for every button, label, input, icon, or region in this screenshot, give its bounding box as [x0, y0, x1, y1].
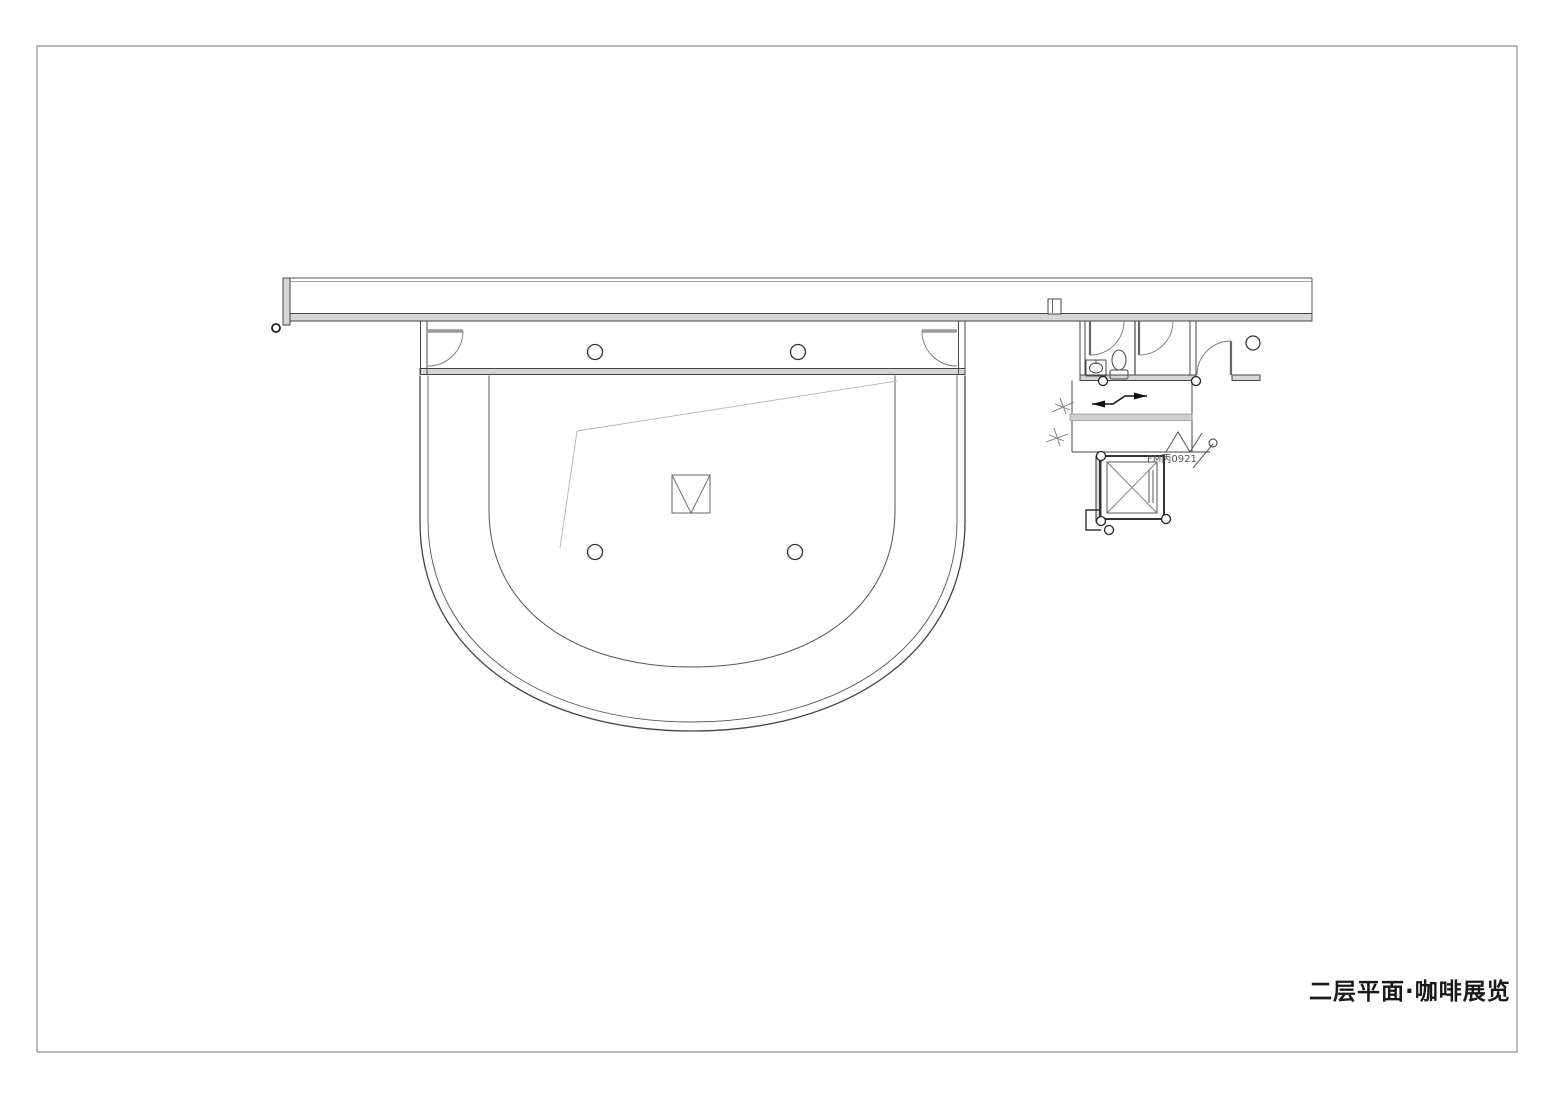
floor-plan-drawing: FM丙0921 二层平面·咖啡展览	[0, 0, 1555, 1100]
ceiling-projection-line	[560, 431, 577, 548]
rib-band-outer-edge	[428, 376, 957, 723]
door-swing-right	[922, 331, 957, 366]
left-wall-end	[283, 278, 290, 325]
top-wall-band	[283, 278, 1312, 325]
corridor-bottom-wall	[420, 369, 965, 375]
paper-frame	[37, 46, 1517, 1052]
bathroom	[1080, 321, 1260, 381]
rib-band-inner-edge	[489, 376, 895, 668]
break-line	[1166, 432, 1202, 452]
ceiling-projection-line	[577, 381, 897, 431]
grip-circle	[1162, 515, 1171, 524]
exhibition-hall	[420, 376, 965, 732]
sink-basin	[1090, 363, 1103, 373]
grip-circle	[1099, 377, 1108, 386]
pipe-shaft	[1048, 299, 1061, 314]
column	[588, 345, 603, 360]
skylight-symbol	[672, 475, 710, 513]
column	[788, 545, 803, 560]
core-bottom-wall2	[1232, 375, 1260, 381]
sprig-icon	[1046, 428, 1068, 446]
column	[1246, 336, 1260, 350]
column	[791, 345, 806, 360]
door-swing	[1197, 341, 1231, 375]
drawing-title-label: 二层平面·咖啡展览	[1309, 978, 1511, 1005]
sprig-icon	[1052, 398, 1074, 414]
plan-group: FM丙0921 二层平面·咖啡展览	[272, 278, 1511, 1005]
arrow-head-icon	[1134, 393, 1147, 400]
grip-circle	[1105, 526, 1114, 535]
fire-door-tag: FM丙0921	[1147, 454, 1197, 465]
main-wall	[283, 314, 1312, 322]
door-swing-left	[428, 331, 463, 366]
door-swing	[1139, 321, 1173, 355]
grip-circle	[1192, 377, 1201, 386]
gallery-corridor	[420, 321, 965, 375]
floor-plan-page: FM丙0921 二层平面·咖啡展览	[0, 0, 1555, 1100]
grip-circle	[1097, 452, 1106, 461]
stair-handrail	[1070, 414, 1192, 421]
plant-sprigs	[1046, 398, 1074, 446]
toilet-icon	[1112, 350, 1126, 370]
arrow-head-icon	[1092, 401, 1105, 408]
column	[588, 545, 603, 560]
skylight-v-mark	[672, 475, 710, 513]
door-knob-mark	[1209, 439, 1217, 447]
staircase	[1046, 381, 1210, 453]
grip-circle	[1097, 517, 1106, 526]
hall-outline	[420, 376, 965, 732]
facade-end-column	[272, 324, 280, 332]
